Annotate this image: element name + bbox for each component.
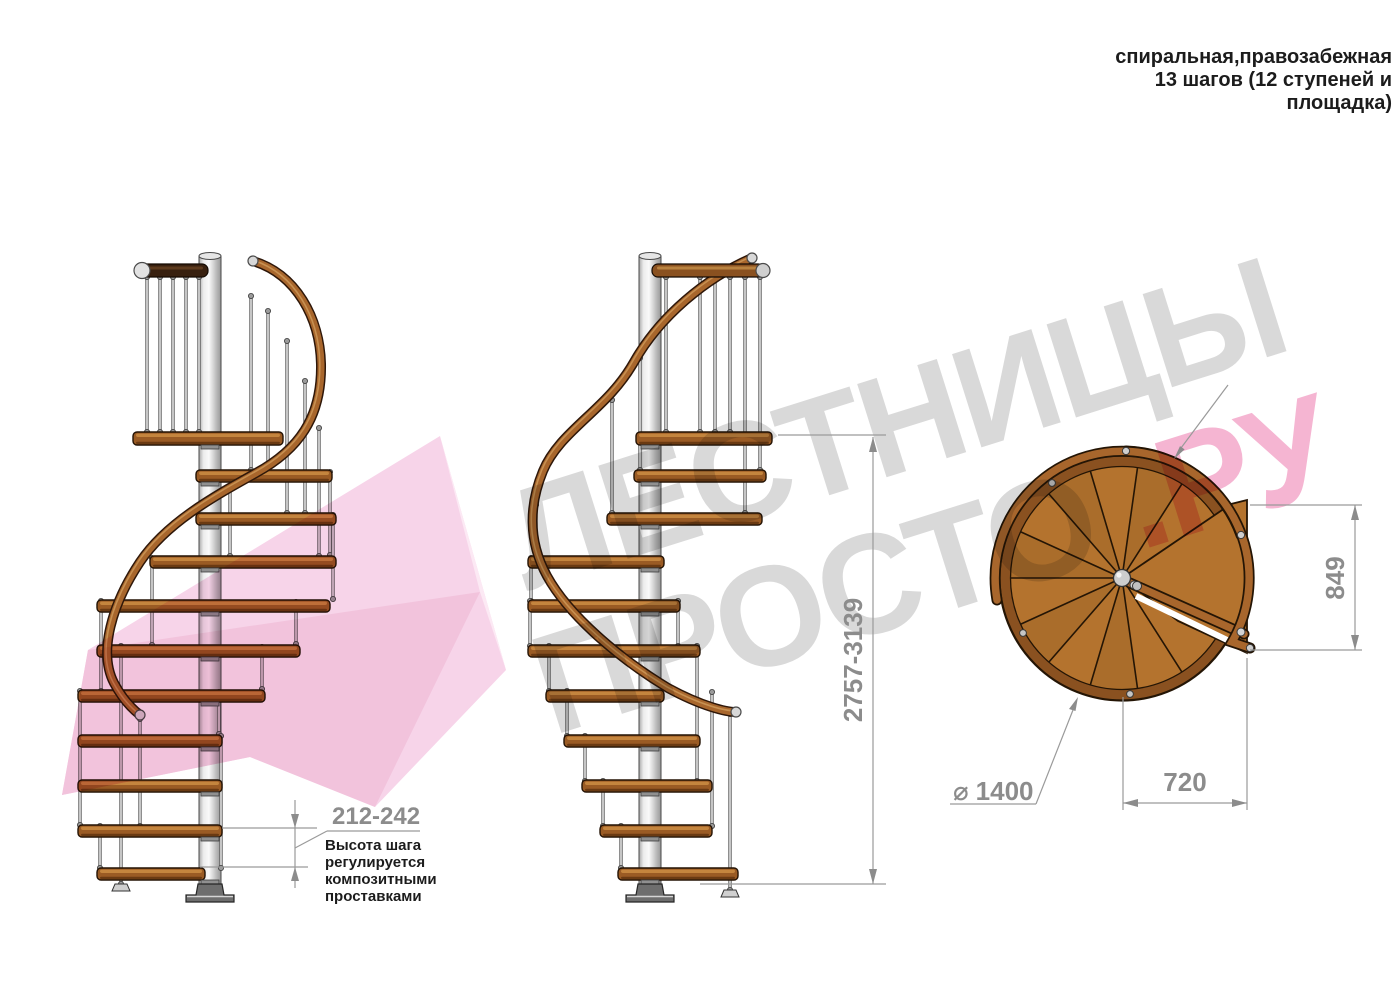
step-height-label: 212-242: [332, 803, 420, 830]
step-height-note: Высота шага регулируется композитными пр…: [325, 837, 437, 905]
dimensions-layer: 2757-3139 849 720 212-242 ⌀1400 Высота ш…: [0, 0, 1400, 1000]
dimension-arrowheads: [291, 437, 1359, 884]
svg-text:Высота шага: Высота шага: [325, 837, 422, 854]
title-line-2: 13 шагов (12 ступеней и: [1155, 69, 1392, 91]
svg-text:регулируется: регулируется: [325, 854, 425, 871]
svg-text:проставками: проставками: [325, 888, 422, 905]
diameter-label: ⌀1400: [953, 776, 1034, 806]
plan-top-leader: [1181, 385, 1228, 448]
title-line-3: площадка): [1287, 92, 1392, 114]
drawing-sheet: ЛЕСТНИЦЫ ПРОСТО .РУ: [0, 0, 1400, 1000]
title-line-1: спиральная,правозабежная: [1115, 46, 1392, 68]
total-height-label: 2757-3139: [838, 598, 868, 722]
platform-depth-label: 849: [1320, 556, 1350, 599]
title-block: спиральная,правозабежная 13 шагов (12 ст…: [1115, 46, 1392, 114]
svg-text:композитными: композитными: [325, 871, 437, 888]
platform-width-label: 720: [1163, 767, 1206, 797]
